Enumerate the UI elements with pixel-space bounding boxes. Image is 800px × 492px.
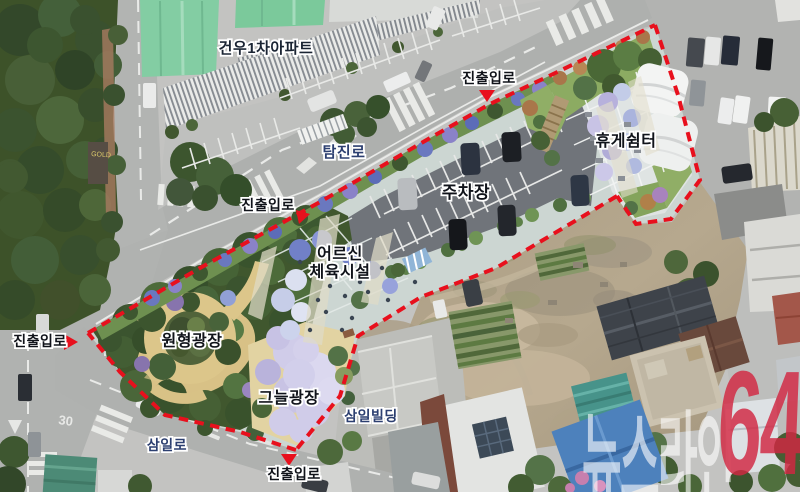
svg-text:진출입로: 진출입로: [267, 466, 321, 482]
svg-text:진출입로: 진출입로: [13, 333, 67, 349]
svg-text:체육시설: 체육시설: [310, 263, 371, 281]
svg-text:30: 30: [58, 412, 74, 429]
svg-text:탐진로: 탐진로: [323, 143, 366, 161]
svg-text:진출입로: 진출입로: [241, 197, 295, 213]
svg-text:원형광장: 원형광장: [162, 331, 223, 350]
svg-text:뉴스라인: 뉴스라인: [582, 404, 734, 492]
svg-text:건우1차아파트: 건우1차아파트: [219, 40, 314, 57]
svg-text:어르신: 어르신: [317, 245, 363, 263]
svg-text:64: 64: [715, 341, 800, 492]
svg-text:휴게쉼터: 휴게쉼터: [596, 131, 657, 150]
svg-text:진출입로: 진출입로: [462, 70, 516, 86]
svg-text:삼일빌딩: 삼일빌딩: [344, 408, 398, 424]
svg-text:그늘광장: 그늘광장: [259, 388, 320, 407]
svg-text:GOLD: GOLD: [91, 151, 111, 159]
svg-text:주차장: 주차장: [442, 183, 490, 202]
svg-text:삼일로: 삼일로: [147, 437, 187, 453]
